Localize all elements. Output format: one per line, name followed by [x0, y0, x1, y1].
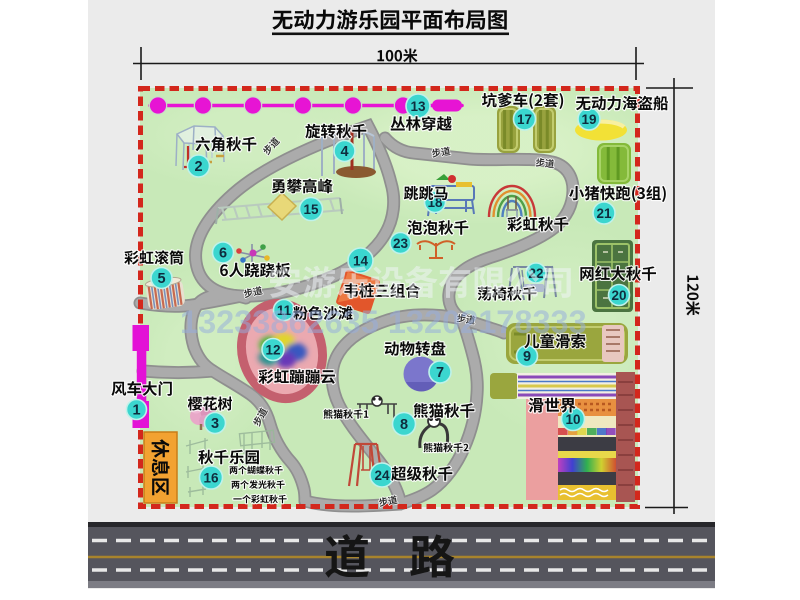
- svg-text:15: 15: [303, 202, 319, 217]
- svg-text:7: 7: [436, 365, 444, 381]
- svg-text:8: 8: [400, 417, 408, 433]
- svg-text:6: 6: [219, 246, 227, 262]
- svg-text:19: 19: [581, 112, 596, 127]
- svg-text:2: 2: [194, 159, 202, 175]
- svg-text:12: 12: [265, 342, 280, 357]
- svg-text:3: 3: [211, 416, 219, 432]
- svg-text:21: 21: [596, 206, 612, 221]
- svg-text:16: 16: [203, 470, 219, 485]
- svg-text:1: 1: [132, 403, 140, 419]
- svg-text:10: 10: [565, 412, 580, 427]
- svg-text:23: 23: [393, 236, 409, 251]
- svg-text:17: 17: [517, 112, 532, 127]
- svg-text:24: 24: [374, 468, 390, 483]
- svg-text:5: 5: [157, 271, 165, 287]
- svg-text:13: 13: [410, 99, 426, 114]
- svg-text:4: 4: [340, 144, 348, 160]
- svg-text:20: 20: [611, 288, 626, 303]
- svg-text:14: 14: [353, 253, 369, 268]
- svg-text:13233862635 13202178333: 13233862635 13202178333: [180, 304, 587, 340]
- svg-text:9: 9: [523, 349, 531, 365]
